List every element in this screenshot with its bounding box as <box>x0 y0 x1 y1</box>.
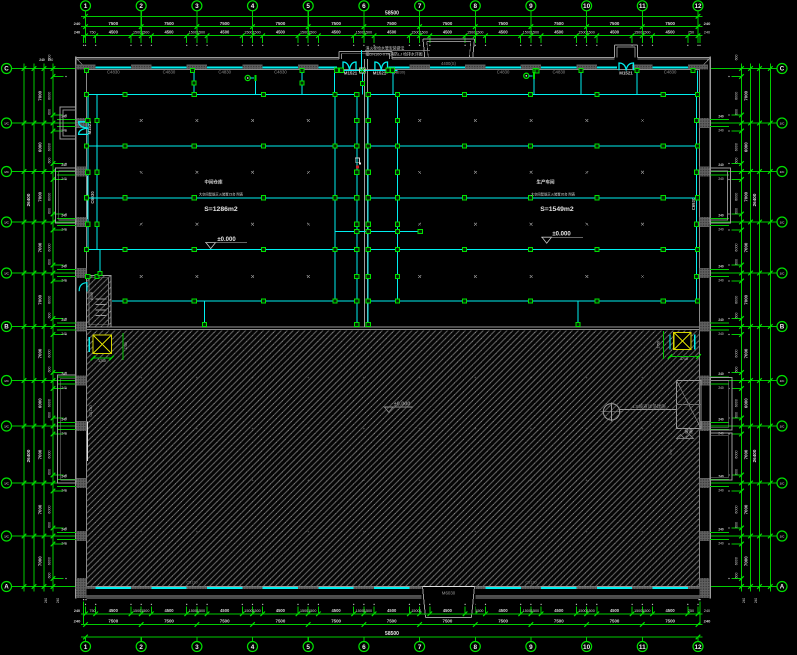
svg-text:240: 240 <box>704 609 710 613</box>
svg-text:C: C <box>780 66 785 73</box>
svg-text:600: 600 <box>48 367 52 373</box>
svg-text:2: 2 <box>139 3 143 10</box>
svg-text:±0.000: ±0.000 <box>217 237 236 243</box>
svg-text:600: 600 <box>735 158 739 164</box>
svg-text:240: 240 <box>74 619 81 624</box>
svg-text:240: 240 <box>704 619 711 624</box>
svg-text:6000: 6000 <box>48 505 52 513</box>
svg-text:6000: 6000 <box>48 296 52 304</box>
svg-text:1/C: 1/C <box>780 221 786 225</box>
svg-text:7000: 7000 <box>744 504 749 514</box>
svg-text:4500: 4500 <box>109 30 119 35</box>
svg-text:±0.000: ±0.000 <box>552 231 571 237</box>
svg-text:240: 240 <box>61 318 67 322</box>
svg-text:600: 600 <box>48 412 52 418</box>
svg-text:240: 240 <box>61 431 67 435</box>
svg-text:7500: 7500 <box>554 21 564 26</box>
svg-text:4: 4 <box>251 644 255 651</box>
svg-text:B: B <box>780 324 785 331</box>
svg-text:6000: 6000 <box>735 505 739 513</box>
svg-text:240: 240 <box>61 227 67 231</box>
svg-text:7000: 7000 <box>38 90 43 100</box>
svg-text:6000: 6000 <box>48 450 52 458</box>
svg-text:15001500: 15001500 <box>244 609 260 613</box>
svg-text:4500: 4500 <box>276 30 286 35</box>
svg-text:240: 240 <box>61 214 67 218</box>
svg-text:1/C: 1/C <box>780 272 786 276</box>
svg-text:240: 240 <box>61 128 67 132</box>
svg-text:4500: 4500 <box>387 30 397 35</box>
svg-text:6000: 6000 <box>735 92 739 100</box>
svg-text:240: 240 <box>718 386 724 390</box>
svg-text:C4830: C4830 <box>218 70 231 75</box>
svg-text:7000: 7000 <box>744 348 749 358</box>
svg-text:4500: 4500 <box>666 30 676 35</box>
svg-text:600: 600 <box>48 208 52 214</box>
svg-text:750: 750 <box>89 609 95 613</box>
svg-text:10: 10 <box>583 3 591 10</box>
svg-text:6000: 6000 <box>48 557 52 565</box>
svg-text:7500: 7500 <box>276 619 286 624</box>
svg-text:240: 240 <box>61 541 67 545</box>
svg-text:600: 600 <box>48 522 52 528</box>
svg-text:1/C: 1/C <box>4 535 10 539</box>
svg-text:600: 600 <box>735 469 739 475</box>
svg-text:7500: 7500 <box>387 21 397 26</box>
svg-text:C: C <box>4 66 9 73</box>
svg-text:240: 240 <box>61 278 67 282</box>
svg-text:6000: 6000 <box>38 398 43 408</box>
svg-text:11: 11 <box>639 644 646 651</box>
svg-text:1/C: 1/C <box>4 122 10 126</box>
svg-text:消火栓给水管安装做法: 消火栓给水管安装做法 <box>366 46 405 51</box>
svg-text:6%: 6% <box>669 449 673 455</box>
svg-text:240: 240 <box>754 598 758 604</box>
svg-text:240: 240 <box>718 488 724 492</box>
svg-text:240: 240 <box>61 475 67 479</box>
svg-text:7500: 7500 <box>387 619 397 624</box>
svg-text:26400: 26400 <box>26 449 31 462</box>
svg-text:7500: 7500 <box>108 619 118 624</box>
svg-text:600: 600 <box>735 313 739 319</box>
svg-text:240: 240 <box>61 265 67 269</box>
svg-text:750: 750 <box>688 31 694 35</box>
svg-text:600: 600 <box>735 109 739 115</box>
svg-text:坡道: 坡道 <box>684 428 693 435</box>
svg-text:7000: 7000 <box>38 348 43 358</box>
svg-text:6000: 6000 <box>744 142 749 152</box>
svg-text:600: 600 <box>48 469 52 475</box>
svg-text:6000: 6000 <box>744 398 749 408</box>
svg-text:6000: 6000 <box>735 143 739 151</box>
svg-text:7000: 7000 <box>38 504 43 514</box>
svg-text:7500: 7500 <box>498 619 508 624</box>
svg-text:15001500: 15001500 <box>578 609 594 613</box>
svg-text:7500: 7500 <box>164 619 174 624</box>
svg-text:7000: 7000 <box>744 90 749 100</box>
svg-text:4500: 4500 <box>332 608 342 613</box>
svg-text:4500: 4500 <box>276 608 286 613</box>
svg-text:6: 6 <box>362 3 366 10</box>
svg-text:4500: 4500 <box>443 30 453 35</box>
svg-text:6000: 6000 <box>48 193 52 201</box>
svg-text:4500: 4500 <box>554 30 564 35</box>
svg-text:7500: 7500 <box>665 619 675 624</box>
svg-text:240: 240 <box>704 31 710 35</box>
svg-text:58500: 58500 <box>385 631 399 637</box>
svg-text:6000: 6000 <box>735 349 739 357</box>
svg-text:6000: 6000 <box>735 557 739 565</box>
svg-text:7500: 7500 <box>220 619 230 624</box>
svg-text:58500: 58500 <box>385 10 399 16</box>
svg-text:600: 600 <box>735 522 739 528</box>
svg-text:600: 600 <box>735 573 739 579</box>
svg-text:1:8坡道详见建施: 1:8坡道详见建施 <box>632 403 666 410</box>
svg-text:生产车间: 生产车间 <box>537 178 555 185</box>
svg-text:600: 600 <box>48 313 52 319</box>
svg-text:C4830: C4830 <box>274 70 287 75</box>
svg-text:240: 240 <box>718 128 724 132</box>
svg-text:4500: 4500 <box>387 608 397 613</box>
svg-text:4500: 4500 <box>610 608 620 613</box>
svg-text:240: 240 <box>39 58 45 62</box>
svg-text:8: 8 <box>474 644 478 651</box>
svg-text:7500: 7500 <box>276 21 286 26</box>
svg-text:15001500: 15001500 <box>634 609 650 613</box>
svg-text:8: 8 <box>474 3 478 10</box>
svg-text:C5130: C5130 <box>525 580 536 584</box>
svg-text:26400: 26400 <box>752 449 757 462</box>
svg-text:750: 750 <box>688 609 694 613</box>
svg-text:C4830: C4830 <box>163 70 176 75</box>
svg-text:4500: 4500 <box>499 30 509 35</box>
svg-text:4500: 4500 <box>109 608 119 613</box>
svg-text:4500: 4500 <box>666 608 676 613</box>
svg-text:240: 240 <box>718 541 724 545</box>
svg-text:6000: 6000 <box>735 450 739 458</box>
svg-text:7000: 7000 <box>744 191 749 201</box>
svg-text:240: 240 <box>718 227 724 231</box>
svg-text:240: 240 <box>718 475 724 479</box>
svg-text:5: 5 <box>306 644 310 651</box>
svg-text:7500: 7500 <box>443 619 453 624</box>
svg-text:7500: 7500 <box>554 619 564 624</box>
svg-text:7500: 7500 <box>610 619 620 624</box>
svg-text:7000: 7000 <box>38 556 43 566</box>
svg-text:C6930: C6930 <box>90 191 95 204</box>
svg-text:1/C: 1/C <box>4 272 10 276</box>
svg-text:4500: 4500 <box>220 30 230 35</box>
svg-text:15001500: 15001500 <box>300 609 316 613</box>
svg-text:7500: 7500 <box>498 21 508 26</box>
svg-text:15001500: 15001500 <box>189 609 205 613</box>
svg-text:S=1549m2: S=1549m2 <box>540 206 574 213</box>
svg-text:7000: 7000 <box>38 191 43 201</box>
svg-text:240: 240 <box>718 214 724 218</box>
svg-text:15001500: 15001500 <box>523 609 539 613</box>
svg-text:6000: 6000 <box>48 349 52 357</box>
svg-text:消火栓: 消火栓 <box>90 292 94 301</box>
svg-text:26400: 26400 <box>752 193 757 206</box>
svg-text:1: 1 <box>84 644 88 651</box>
svg-text:1/C: 1/C <box>4 482 10 486</box>
svg-text:7500: 7500 <box>331 21 341 26</box>
svg-text:7500: 7500 <box>108 21 118 26</box>
svg-text:4400(S): 4400(S) <box>441 61 457 66</box>
svg-text:C4830: C4830 <box>664 70 677 75</box>
svg-text:7: 7 <box>418 644 422 651</box>
svg-text:4: 4 <box>251 3 255 10</box>
svg-text:240: 240 <box>61 488 67 492</box>
svg-text:4500: 4500 <box>443 608 453 613</box>
svg-text:1710: 1710 <box>98 359 106 363</box>
svg-text:1710: 1710 <box>680 357 688 361</box>
svg-text:4500: 4500 <box>610 30 620 35</box>
svg-text:6000: 6000 <box>735 243 739 251</box>
svg-text:4500: 4500 <box>554 608 564 613</box>
svg-text:240: 240 <box>704 21 711 26</box>
svg-text:240: 240 <box>718 332 724 336</box>
svg-text:7500: 7500 <box>665 21 675 26</box>
svg-text:接DN100-X7P消防LJ 给排水详图: 接DN100-X7P消防LJ 给排水详图 <box>366 51 423 56</box>
svg-text:11: 11 <box>639 3 646 10</box>
svg-text:240: 240 <box>61 418 67 422</box>
svg-text:C5130: C5130 <box>186 580 197 584</box>
svg-text:240: 240 <box>718 177 724 181</box>
svg-text:600: 600 <box>735 367 739 373</box>
svg-text:7000: 7000 <box>38 294 43 304</box>
svg-text:15001500: 15001500 <box>356 609 372 613</box>
svg-text:240: 240 <box>718 318 724 322</box>
svg-text:9: 9 <box>529 3 533 10</box>
svg-text:1750: 1750 <box>657 341 661 349</box>
svg-text:C4830: C4830 <box>497 70 510 75</box>
svg-text:600: 600 <box>48 158 52 164</box>
svg-text:6000: 6000 <box>735 399 739 407</box>
svg-text:600: 600 <box>735 259 739 265</box>
svg-text:A: A <box>4 584 9 591</box>
svg-text:±0.000: ±0.000 <box>394 401 410 407</box>
svg-text:7000: 7000 <box>744 242 749 252</box>
svg-text:6000: 6000 <box>48 92 52 100</box>
svg-text:大空间智能灭火装置26台 附表: 大空间智能灭火装置26台 附表 <box>531 192 576 197</box>
svg-text:1/C: 1/C <box>780 535 786 539</box>
svg-text:600: 600 <box>48 259 52 265</box>
svg-text:1/C: 1/C <box>4 425 10 429</box>
svg-text:240: 240 <box>742 598 746 604</box>
svg-text:240: 240 <box>56 598 60 604</box>
svg-text:240: 240 <box>718 115 724 119</box>
svg-text:1/C: 1/C <box>780 482 786 486</box>
svg-text:240: 240 <box>61 528 67 532</box>
svg-text:4500: 4500 <box>164 30 174 35</box>
svg-text:5: 5 <box>306 3 310 10</box>
svg-text:M1521: M1521 <box>344 71 358 76</box>
svg-text:600: 600 <box>735 412 739 418</box>
svg-text:1/C: 1/C <box>780 170 786 174</box>
svg-text:240: 240 <box>74 21 81 26</box>
svg-text:12: 12 <box>694 644 702 651</box>
svg-text:600: 600 <box>48 109 52 115</box>
svg-text:1: 1 <box>84 3 88 10</box>
svg-text:240: 240 <box>48 58 54 62</box>
svg-text:12: 12 <box>694 3 702 10</box>
svg-text:240: 240 <box>718 278 724 282</box>
svg-text:3: 3 <box>195 3 199 10</box>
svg-text:中间仓库: 中间仓库 <box>205 178 223 185</box>
svg-text:7500: 7500 <box>220 21 230 26</box>
svg-text:240: 240 <box>718 163 724 167</box>
svg-text:2: 2 <box>139 644 143 651</box>
svg-text:240: 240 <box>718 528 724 532</box>
svg-text:1/C: 1/C <box>4 221 10 225</box>
svg-text:7000: 7000 <box>744 449 749 459</box>
svg-text:大空间智能灭火装置23台 附表: 大空间智能灭火装置23台 附表 <box>199 192 244 197</box>
svg-text:7500: 7500 <box>610 21 620 26</box>
svg-text:B: B <box>4 324 9 331</box>
svg-text:7000: 7000 <box>38 242 43 252</box>
svg-text:7500: 7500 <box>331 619 341 624</box>
svg-text:240: 240 <box>61 332 67 336</box>
svg-text:C4830: C4830 <box>107 70 120 75</box>
svg-text:7000: 7000 <box>744 294 749 304</box>
svg-text:9: 9 <box>529 644 533 651</box>
svg-text:1/C: 1/C <box>4 170 10 174</box>
svg-text:240: 240 <box>61 163 67 167</box>
svg-text:7: 7 <box>418 3 422 10</box>
svg-text:240: 240 <box>61 386 67 390</box>
svg-text:240: 240 <box>61 177 67 181</box>
svg-text:1/C: 1/C <box>780 425 786 429</box>
svg-text:240: 240 <box>74 31 80 35</box>
svg-text:7500: 7500 <box>164 21 174 26</box>
svg-text:240: 240 <box>718 265 724 269</box>
svg-text:600: 600 <box>735 55 739 61</box>
svg-text:6000: 6000 <box>735 296 739 304</box>
svg-text:S=1286m2: S=1286m2 <box>204 206 238 213</box>
svg-text:6000: 6000 <box>48 399 52 407</box>
svg-text:240: 240 <box>61 115 67 119</box>
svg-text:1/C: 1/C <box>780 122 786 126</box>
svg-text:26400: 26400 <box>26 193 31 206</box>
svg-text:1/C: 1/C <box>4 379 10 383</box>
svg-text:6000: 6000 <box>48 243 52 251</box>
svg-text:600: 600 <box>735 208 739 214</box>
svg-text:240: 240 <box>44 598 48 604</box>
svg-text:4500: 4500 <box>332 30 342 35</box>
svg-text:M6030: M6030 <box>442 591 456 596</box>
svg-text:3: 3 <box>195 644 199 651</box>
svg-text:240: 240 <box>718 372 724 376</box>
svg-text:4500: 4500 <box>499 608 509 613</box>
svg-text:M1521: M1521 <box>619 71 633 76</box>
svg-text:7000: 7000 <box>744 556 749 566</box>
svg-text:C4830: C4830 <box>552 70 565 75</box>
svg-text:6000: 6000 <box>735 193 739 201</box>
svg-text:6: 6 <box>362 644 366 651</box>
svg-text:4500: 4500 <box>164 608 174 613</box>
svg-text:7500: 7500 <box>443 21 453 26</box>
svg-text:600: 600 <box>48 573 52 579</box>
svg-text:A: A <box>780 584 785 591</box>
svg-text:1750: 1750 <box>124 342 128 350</box>
svg-text:15001500: 15001500 <box>133 609 149 613</box>
svg-text:6000: 6000 <box>38 142 43 152</box>
svg-text:4500: 4500 <box>220 608 230 613</box>
svg-text:240: 240 <box>74 609 80 613</box>
svg-text:10: 10 <box>583 644 591 651</box>
svg-text:1/C: 1/C <box>780 379 786 383</box>
svg-text:7000: 7000 <box>38 449 43 459</box>
svg-text:C5130: C5130 <box>89 405 93 416</box>
svg-text:750: 750 <box>89 31 95 35</box>
svg-text:6000: 6000 <box>48 143 52 151</box>
svg-text:M1521: M1521 <box>373 71 387 76</box>
svg-text:240: 240 <box>718 418 724 422</box>
